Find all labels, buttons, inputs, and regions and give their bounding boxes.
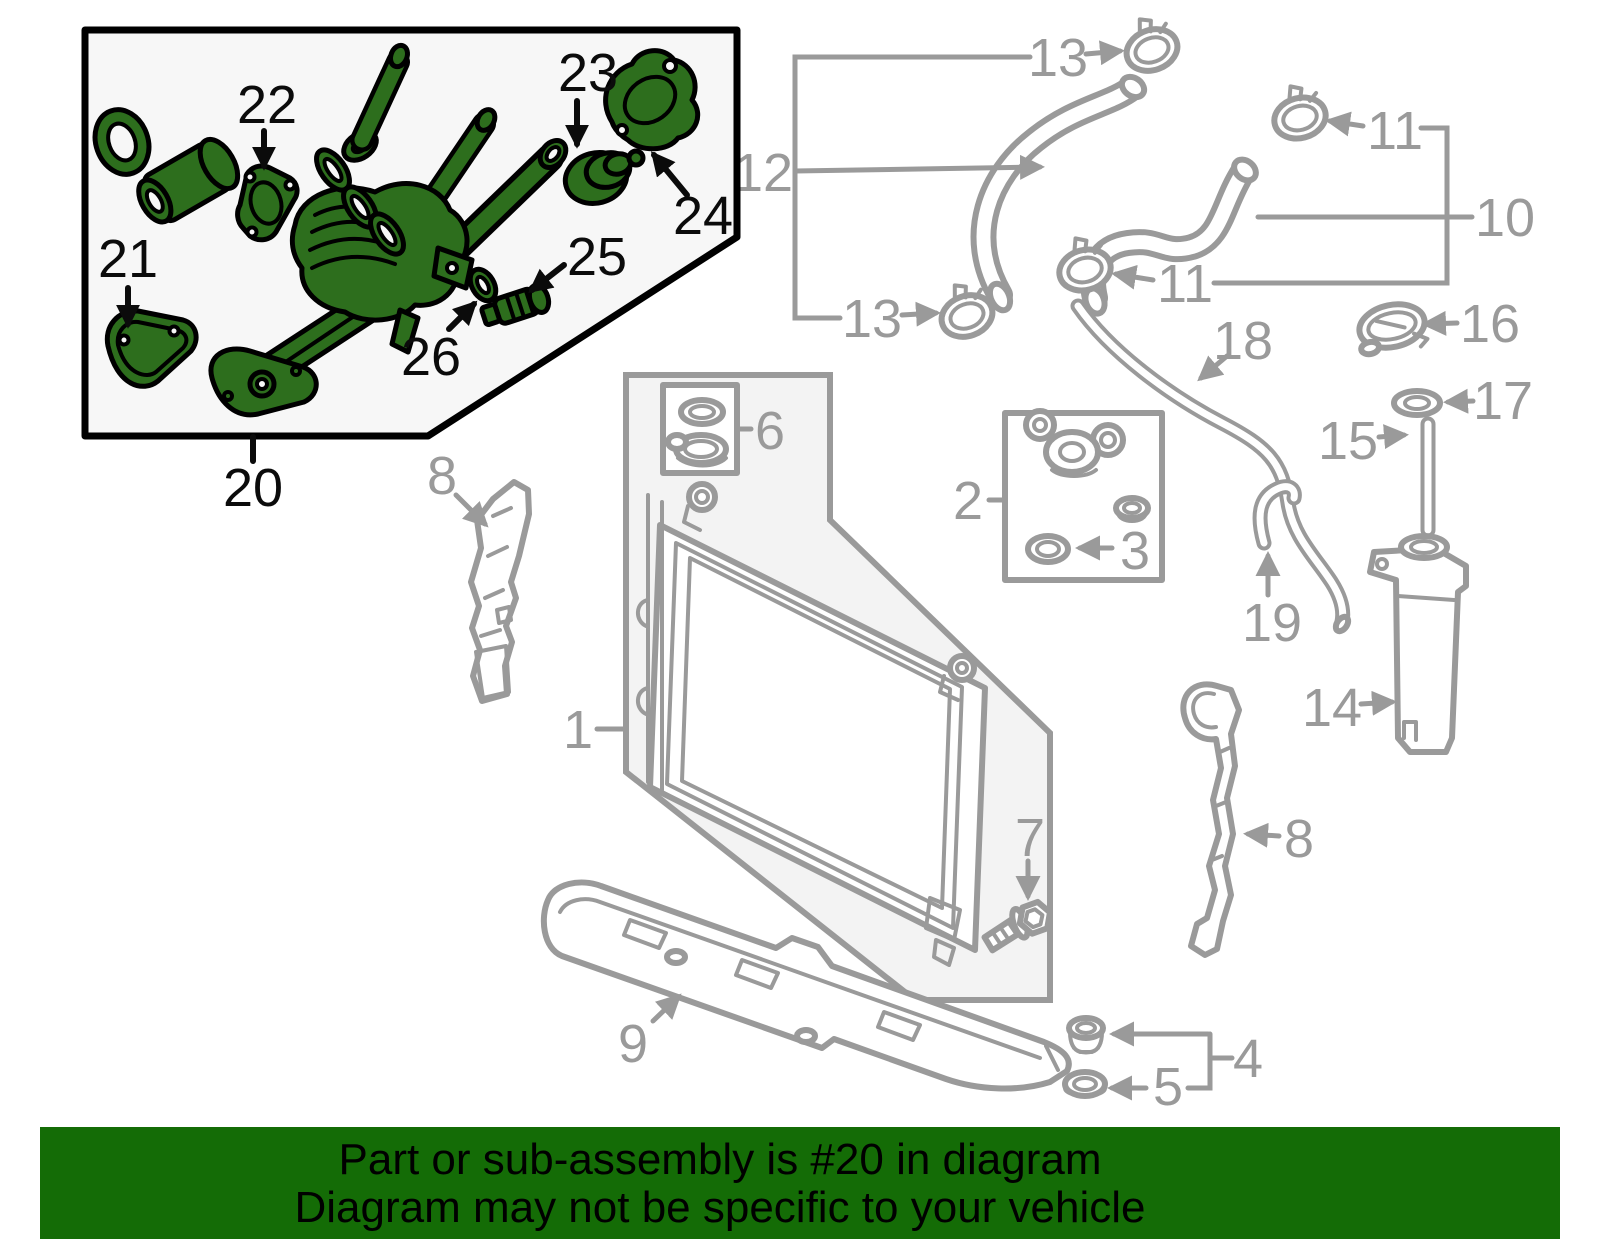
callout-22[interactable]: 22 <box>237 75 297 135</box>
callout-24[interactable]: 24 <box>673 186 733 246</box>
grommet-lower <box>1065 1072 1105 1096</box>
callout-11-bottom[interactable]: 11 <box>1157 254 1213 314</box>
callout-2[interactable]: 2 <box>953 471 983 531</box>
reservoir-cap <box>1353 299 1429 359</box>
callout-15[interactable]: 15 <box>1318 411 1378 471</box>
callout-8-right[interactable]: 8 <box>1284 809 1314 869</box>
hose-clamp-11-top <box>1266 79 1330 144</box>
callout-12[interactable]: 12 <box>733 143 793 203</box>
callout-13-top[interactable]: 13 <box>1028 28 1088 88</box>
callout-19[interactable]: 19 <box>1242 593 1302 653</box>
banner-line-1: Part or sub-assembly is #20 in diagram <box>40 1136 1400 1184</box>
callout-17[interactable]: 17 <box>1473 371 1533 431</box>
callout-9[interactable]: 9 <box>618 1014 648 1074</box>
callout-13-bottom[interactable]: 13 <box>842 289 902 349</box>
callout-20[interactable]: 20 <box>223 458 283 518</box>
reservoir-o-ring <box>1394 391 1440 415</box>
callout-8-left[interactable]: 8 <box>427 446 457 506</box>
bracket-left <box>471 482 529 701</box>
callout-5[interactable]: 5 <box>1153 1057 1183 1117</box>
callout-16[interactable]: 16 <box>1460 294 1520 354</box>
callout-23[interactable]: 23 <box>558 43 618 103</box>
parts-diagram-stage: 1 2 3 4 5 6 7 8 8 9 10 11 11 12 13 13 14… <box>0 0 1600 1249</box>
coolant-reservoir <box>1370 536 1466 752</box>
grommet-upper <box>1069 1018 1103 1053</box>
exploded-parts-diagram: 1 2 3 4 5 6 7 8 8 9 10 11 11 12 13 13 14… <box>0 0 1600 1249</box>
callout-25[interactable]: 25 <box>567 227 627 287</box>
bracket-right <box>1183 684 1239 955</box>
callout-1[interactable]: 1 <box>563 700 593 760</box>
callout-14[interactable]: 14 <box>1302 678 1362 738</box>
callout-26[interactable]: 26 <box>401 327 461 387</box>
callout-7[interactable]: 7 <box>1015 808 1045 868</box>
callout-4[interactable]: 4 <box>1233 1029 1263 1089</box>
callout-6[interactable]: 6 <box>755 401 785 461</box>
callout-18[interactable]: 18 <box>1213 311 1273 371</box>
radiator-cap-box <box>663 385 737 473</box>
callout-10[interactable]: 10 <box>1475 188 1535 248</box>
callout-11-top[interactable]: 11 <box>1367 101 1423 161</box>
callout-21[interactable]: 21 <box>98 229 158 289</box>
banner-line-2: Diagram may not be specific to your vehi… <box>40 1184 1400 1232</box>
callout-3[interactable]: 3 <box>1120 521 1150 581</box>
hose-clamp-13-top <box>1116 10 1183 78</box>
highlight-banner: Part or sub-assembly is #20 in diagram D… <box>40 1127 1560 1239</box>
